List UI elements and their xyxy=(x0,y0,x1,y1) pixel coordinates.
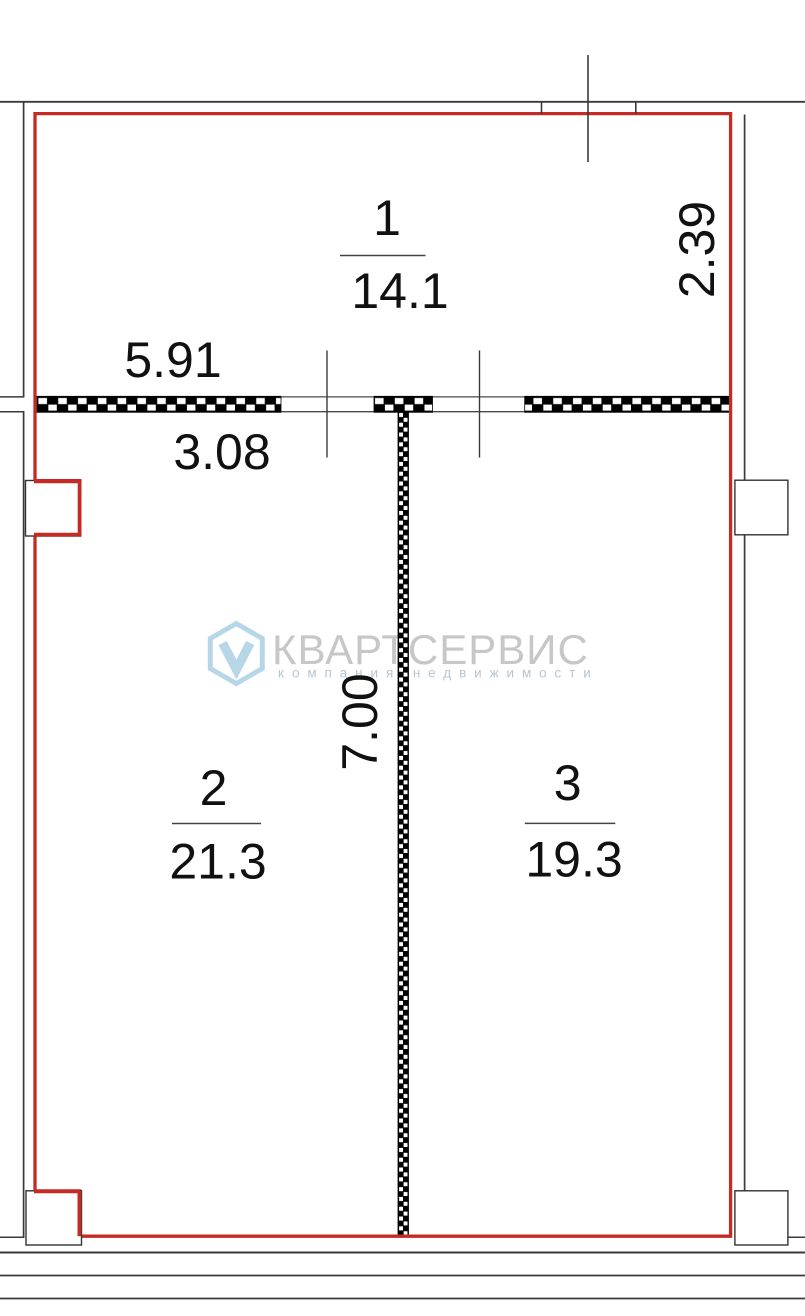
svg-text:2: 2 xyxy=(200,760,228,816)
svg-text:14.1: 14.1 xyxy=(351,263,448,319)
svg-text:5.91: 5.91 xyxy=(124,332,221,388)
svg-text:1: 1 xyxy=(373,190,401,246)
svg-text:компания недвижимости: компания недвижимости xyxy=(278,666,599,681)
svg-text:3: 3 xyxy=(554,755,582,811)
svg-text:2.39: 2.39 xyxy=(669,201,725,298)
svg-text:3.08: 3.08 xyxy=(173,424,270,480)
svg-text:7.00: 7.00 xyxy=(332,673,388,770)
svg-text:21.3: 21.3 xyxy=(169,834,266,890)
svg-text:19.3: 19.3 xyxy=(525,832,622,888)
